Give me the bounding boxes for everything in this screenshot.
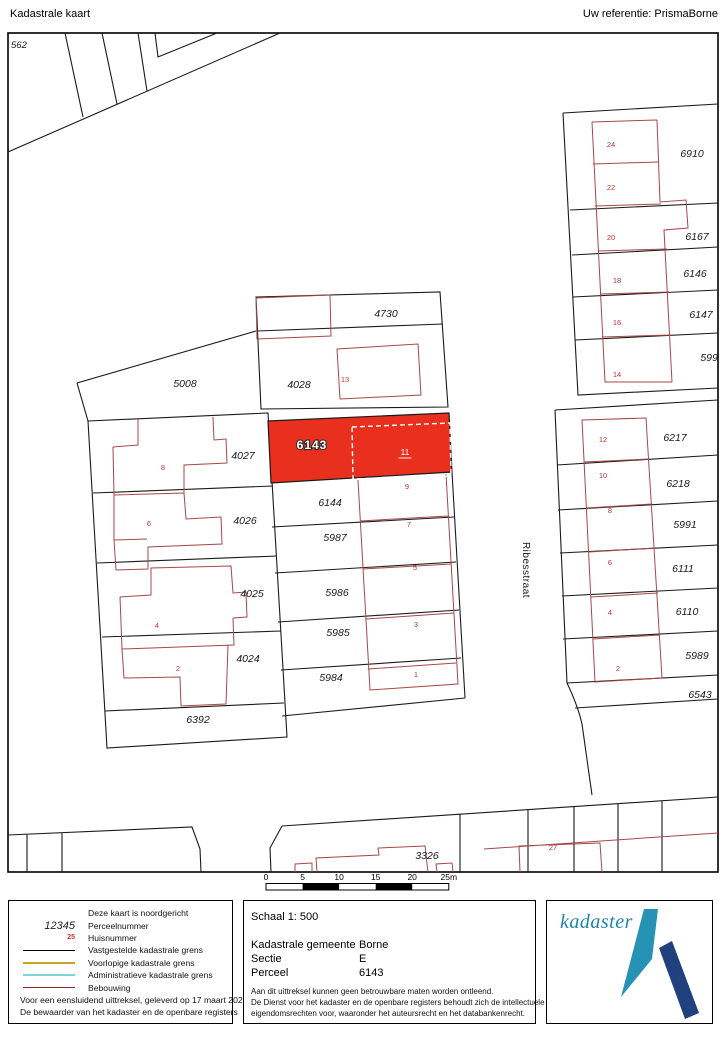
legend-sample <box>11 987 88 989</box>
scalebar-tick: 20 <box>407 872 417 882</box>
scalebar-tick: 15 <box>371 872 381 882</box>
house-number-label: 27 <box>549 843 557 852</box>
house-number-label: 6 <box>147 519 151 528</box>
legend-row: Deze kaart is noordgericht <box>11 907 230 919</box>
parcel-number-label: 6146 <box>683 268 707 280</box>
parcel-number-label: 6217 <box>663 432 688 444</box>
house-number-label: 8 <box>608 506 612 515</box>
legend-label: Bebouwing <box>88 983 131 993</box>
legend-row: Administratieve kadastrale grens <box>11 969 230 981</box>
parcel-number-label: 4027 <box>231 450 256 462</box>
legend-row: Voorlopige kadastrale grens <box>11 957 230 969</box>
parcel-number-label: 6110 <box>676 606 699 618</box>
detail-row: Perceel6143 <box>251 967 535 981</box>
parcel-number-label: 4024 <box>236 653 260 665</box>
scale-bar: 0510152025m <box>264 872 457 890</box>
house-number-label: 7 <box>407 520 411 529</box>
parcel-number-label: 6167 <box>685 231 710 243</box>
house-number-label: 22 <box>607 183 615 192</box>
legend-panel: Deze kaart is noordgericht12345Perceelnu… <box>8 900 233 1024</box>
scalebar-tick: 25m <box>441 872 458 882</box>
house-number-label: 20 <box>607 233 615 242</box>
logo-panel: kadaster <box>546 900 713 1024</box>
house-number-label: 5 <box>413 563 417 572</box>
parcel-number-label: 5008 <box>173 378 197 390</box>
parcel-number-label: 5984 <box>319 672 343 684</box>
house-number-label: 9 <box>405 482 409 491</box>
house-number-label: 13 <box>341 375 349 384</box>
legend-row: 25Huisnummer <box>11 932 230 944</box>
legend-row: Vastgestelde kadastrale grens <box>11 944 230 956</box>
highlight-house-number: 11 <box>401 447 410 457</box>
detail-rows: Kadastrale gemeenteBorneSectieEPerceel61… <box>251 939 535 981</box>
house-number-label: 8 <box>161 463 165 472</box>
parcel-number-label: 5987 <box>323 532 348 544</box>
parcel-number-label: 562 <box>11 40 28 51</box>
legend-label: Perceelnummer <box>88 921 149 931</box>
house-number-label: 1 <box>414 670 418 679</box>
parcel-number-label: 6147 <box>689 309 714 321</box>
house-number-label: 24 <box>607 140 615 149</box>
scalebar-tick: 10 <box>334 872 344 882</box>
legend-line-sample <box>23 974 75 976</box>
scale-bar-ticks: 0510152025m <box>264 872 457 882</box>
scalebar-tick: 0 <box>264 872 269 882</box>
logo-bar-shape <box>659 941 699 1019</box>
house-number-label: 18 <box>613 276 621 285</box>
parcel-number-label: 5991 <box>673 519 696 531</box>
map-scale-label: Schaal 1: 500 <box>251 911 535 923</box>
parcel-number-label: 4025 <box>240 588 264 600</box>
parcel-number-label: 4028 <box>287 379 311 391</box>
legend-sample <box>11 950 88 952</box>
parcel-number-label: 4026 <box>233 515 257 527</box>
detail-value: 6143 <box>359 967 383 981</box>
kadaster-logo-icon <box>547 901 714 1025</box>
house-number-label: 16 <box>613 318 621 327</box>
parcel-number-label: 6543 <box>688 689 712 701</box>
scale-bar-track <box>266 884 449 891</box>
detail-label: Sectie <box>251 953 359 967</box>
disclaimer-line: Aan dit uittreksel kunnen geen betrouwba… <box>251 986 545 997</box>
disclaimer-line: De Dienst voor het kadaster en de openba… <box>251 997 545 1008</box>
legend-line-sample <box>23 962 75 964</box>
detail-label: Perceel <box>251 967 359 981</box>
legend-sample <box>11 974 88 976</box>
parcel-number-label: 5985 <box>326 627 350 639</box>
detail-row: SectieE <box>251 953 535 967</box>
legend-label: Administratieve kadastrale grens <box>88 970 213 980</box>
parcel-number-label: 6218 <box>666 478 690 490</box>
house-number-label: 10 <box>599 471 607 480</box>
parcel-number-label: 5997 <box>700 352 725 364</box>
details-panel: Schaal 1: 500 Kadastrale gemeenteBorneSe… <box>243 900 536 1024</box>
legend-footnote-line: De bewaarder van het kadaster en de open… <box>20 1007 247 1019</box>
house-number-label: 14 <box>613 370 621 379</box>
parcel-number-label: 6910 <box>680 148 704 160</box>
legend-label: Deze kaart is noordgericht <box>88 908 188 918</box>
detail-value: Borne <box>359 939 388 953</box>
detail-value: E <box>359 953 366 967</box>
house-number-label: 4 <box>608 608 612 617</box>
disclaimer-line: eigendomsrechten voor, waaronder het aut… <box>251 1008 545 1019</box>
house-number-label: 6 <box>608 558 612 567</box>
legend-label: Vastgestelde kadastrale grens <box>88 945 203 955</box>
legend-house-number-sample: 25 <box>67 934 75 941</box>
parcel-number-label: 4730 <box>374 308 398 320</box>
parcel-number-label: 5986 <box>325 587 349 599</box>
disclaimer-text: Aan dit uittreksel kunnen geen betrouwba… <box>251 986 545 1019</box>
legend-parcel-number-sample: 12345 <box>44 920 75 932</box>
detail-label: Kadastrale gemeente <box>251 939 359 953</box>
parcel-number-label: 6111 <box>672 563 694 575</box>
parcel-number-label: 6392 <box>186 714 210 726</box>
house-number-label: 12 <box>599 435 607 444</box>
legend-row: Bebouwing <box>11 981 230 993</box>
parcel-number-label: 3326 <box>415 850 439 862</box>
legend-rows: Deze kaart is noordgericht12345Perceelnu… <box>11 907 230 994</box>
legend-line-sample <box>23 950 75 952</box>
parcel-number-label: 5989 <box>685 650 709 662</box>
detail-row: Kadastrale gemeenteBorne <box>251 939 535 953</box>
cadastral-map: 562 Ribesstraat 6143 11 6910616761466147… <box>0 0 726 1040</box>
house-number-label: 4 <box>155 621 159 630</box>
legend-sample: 12345 <box>11 920 88 932</box>
scalebar-tick: 5 <box>300 872 305 882</box>
legend-label: Voorlopige kadastrale grens <box>88 958 195 968</box>
legend-sample: 25 <box>11 934 88 941</box>
house-number-label: 3 <box>414 620 418 629</box>
legend-footnote: Voor een eensluidend uittreksel, gelever… <box>20 995 247 1018</box>
house-number-label: 2 <box>616 664 620 673</box>
parcel-number-label: 6144 <box>318 497 342 509</box>
highlight-parcel-number: 6143 <box>297 438 328 452</box>
legend-row: 12345Perceelnummer <box>11 919 230 931</box>
scale-bar-segment <box>376 884 413 891</box>
street-name-label: Ribesstraat <box>520 542 531 598</box>
logo-blade-shape <box>621 909 658 997</box>
legend-line-sample <box>23 987 75 989</box>
legend-sample <box>11 962 88 964</box>
house-number-label: 2 <box>176 664 180 673</box>
scale-bar-segment <box>303 884 340 891</box>
legend-footnote-line: Voor een eensluidend uittreksel, gelever… <box>20 995 247 1007</box>
legend-label: Huisnummer <box>88 933 137 943</box>
